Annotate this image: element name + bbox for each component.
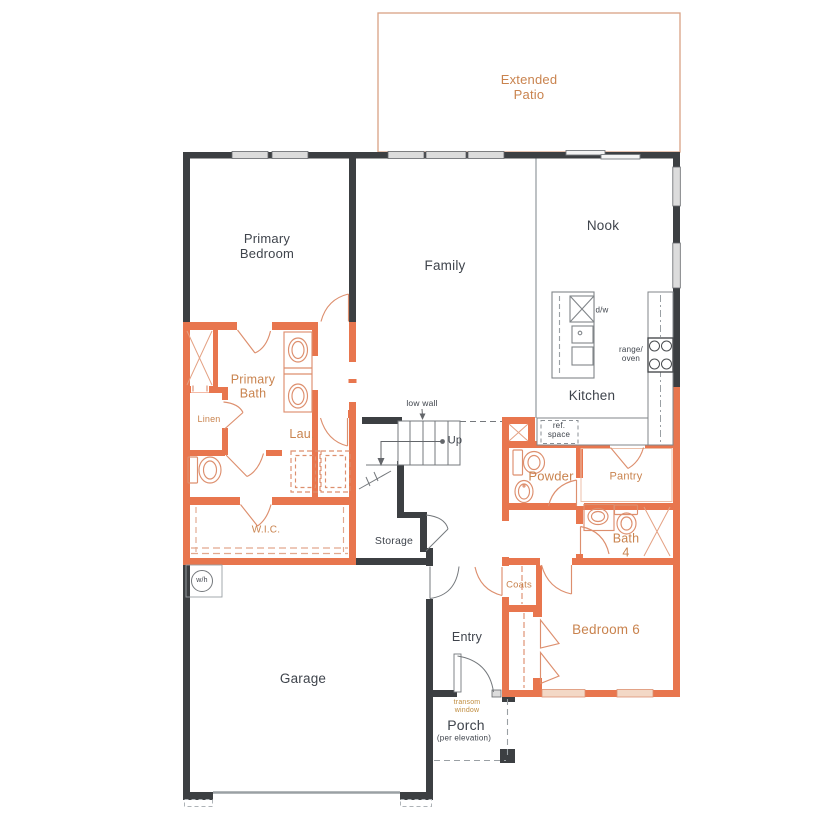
label-coats: Coats: [506, 581, 532, 592]
label-bedroom6: Bedroom 6: [572, 622, 640, 638]
label-bath4: Bath 4: [613, 532, 640, 561]
label-range-oven: range/ oven: [619, 345, 643, 363]
label-laundry: Lau.: [289, 427, 314, 441]
cased-opening-tick: [349, 379, 357, 383]
label-porch: Porch: [447, 717, 485, 733]
floor-plan: Extended Patio Primary Bedroom Family No…: [0, 0, 840, 840]
label-garage: Garage: [280, 671, 326, 687]
label-ref-space: ref. space: [548, 421, 570, 439]
label-powder: Powder: [528, 470, 573, 485]
label-dishwasher: d/w: [595, 305, 608, 314]
label-porch-note: (per elevation): [437, 733, 491, 742]
label-pantry: Pantry: [610, 471, 643, 484]
label-low-wall: low wall: [406, 399, 437, 409]
kitchen-counter-range: [648, 292, 673, 445]
label-storage: Storage: [375, 535, 413, 547]
label-transom-window: transom window: [454, 699, 481, 715]
label-primary-bath: Primary Bath: [231, 373, 275, 402]
garage-door-line: [185, 793, 432, 807]
floorplan-drawing: [0, 0, 840, 840]
label-nook: Nook: [587, 218, 619, 234]
label-wic: W.I.C.: [252, 524, 280, 536]
label-primary-bedroom: Primary Bedroom: [240, 232, 294, 262]
label-family: Family: [425, 258, 466, 274]
kitchen-island: [552, 292, 594, 378]
label-kitchen: Kitchen: [569, 388, 615, 404]
label-up: Up: [448, 435, 462, 448]
label-extended-patio: Extended Patio: [501, 73, 558, 103]
gray-doors: [426, 515, 494, 692]
label-linen: Linen: [197, 414, 220, 424]
label-water-heater: w/h: [196, 577, 208, 585]
label-entry: Entry: [452, 630, 482, 644]
